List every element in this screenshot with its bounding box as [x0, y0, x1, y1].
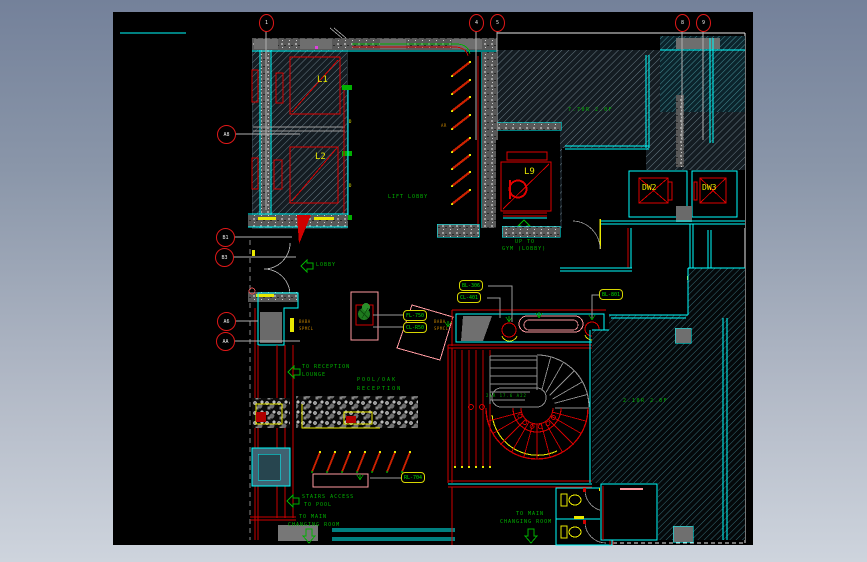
changing-left-line1: TO MAIN: [299, 515, 327, 520]
wall-tag2-line1: BABA: [434, 320, 446, 324]
finish-tag-cl401: CL-401: [457, 292, 481, 303]
door-mark-d1: D: [349, 120, 351, 124]
finish-tag-fl750: FL-750: [403, 310, 427, 321]
arrow-left-icon: [301, 260, 313, 272]
finish-tag-clr50: CL-R50: [403, 322, 427, 333]
wall-lights-zigzag: [452, 52, 496, 228]
lift-dir-line2: GYM (LOBBY): [502, 247, 546, 252]
wall-tag-line2: SPMCL: [299, 327, 314, 331]
finish-tag-bl801: BL-801: [599, 289, 623, 300]
lift-l2-label: L2: [315, 153, 326, 162]
grid-bubble-b3: B3: [215, 248, 234, 267]
arrow-down-center-icon: [525, 529, 537, 543]
grid-bubble-5: 5: [490, 14, 505, 32]
grid-bubble-label: A6: [223, 319, 229, 325]
door-mark-d2: D: [349, 184, 351, 188]
grid-bubble-label: 1: [265, 20, 268, 26]
dw3-label: DW3: [702, 184, 716, 192]
grid-bubble-9: 9: [696, 14, 711, 32]
stairs-access-line2: TO POOL: [304, 503, 332, 508]
floorplan-linework: [0, 0, 867, 562]
entry-double-doors: [248, 214, 348, 302]
wall-tag-line1: BABA: [299, 320, 311, 324]
wall-tag2-line2: SPMCL: [434, 327, 449, 331]
finish-tag-rl704: RL-704: [401, 472, 425, 483]
grid-bubble-label: A8: [223, 132, 229, 138]
planter-beds: [252, 396, 418, 428]
pool-deck-note: 2.10R 2.0F: [623, 399, 668, 404]
grid-bubble-b1: B1: [216, 228, 235, 247]
cad-viewport: 1 4 5 8 9 A8 B1 B3 A6 AA L1 L2 L9 DW2 DW…: [0, 0, 867, 562]
bottom-right-room: [600, 483, 658, 540]
to-reception-line2: LOUNGE: [302, 373, 326, 378]
dw2-label: DW2: [642, 184, 656, 192]
lift-dir-line1: UP TO: [515, 240, 535, 245]
plant-markers-row: [312, 452, 410, 472]
grid-bubble-8: 8: [675, 14, 690, 32]
lift-l1-label: L1: [317, 76, 328, 85]
pool-reception-line2: RECEPTION: [357, 387, 402, 392]
pool-reception-line1: POOL/OAK: [357, 378, 397, 383]
grid-bubble-aa: AA: [216, 332, 235, 351]
arrow-left-reception-icon: [288, 366, 300, 378]
changing-center-line2: CHANGING ROOM: [500, 520, 552, 525]
grid-bubble-label: 8: [681, 20, 684, 26]
to-reception-line1: TO RECEPTION: [302, 365, 350, 370]
lobby-label: LOBBY: [316, 263, 336, 268]
grid-bubble-4: 4: [469, 14, 484, 32]
finish-tag-bl306: BL-306: [459, 280, 483, 291]
grid-bubble-label: 4: [475, 20, 478, 26]
lift-l9-label: L9: [524, 168, 535, 177]
changing-left-line2: CHANGING ROOM: [288, 523, 340, 528]
lift-lobby-label: LIFT LOBBY: [388, 195, 428, 200]
ar-tag: AR: [441, 124, 447, 128]
changing-center-line1: TO MAIN: [516, 512, 544, 517]
grid-bubble-label: B1: [222, 235, 228, 241]
upper-room-note: 7.70R 2.0F: [568, 108, 613, 113]
grid-bubble-a6: A6: [217, 312, 236, 331]
bench: [313, 474, 403, 487]
wall-hatch-topright: [497, 36, 745, 228]
grid-bubble-1: 1: [259, 14, 274, 32]
grid-bubble-label: AA: [222, 339, 228, 345]
stair-note: 21R 17.6 A22: [486, 394, 527, 398]
grid-bubble-a8: A8: [217, 125, 236, 144]
grid-bubble-label: 5: [496, 20, 499, 26]
spiral-stair: [448, 330, 592, 487]
grid-bubble-label: B3: [221, 255, 227, 261]
stairs-access-line1: STAIRS ACCESS: [302, 495, 354, 500]
grid-bubble-label: 9: [702, 20, 705, 26]
